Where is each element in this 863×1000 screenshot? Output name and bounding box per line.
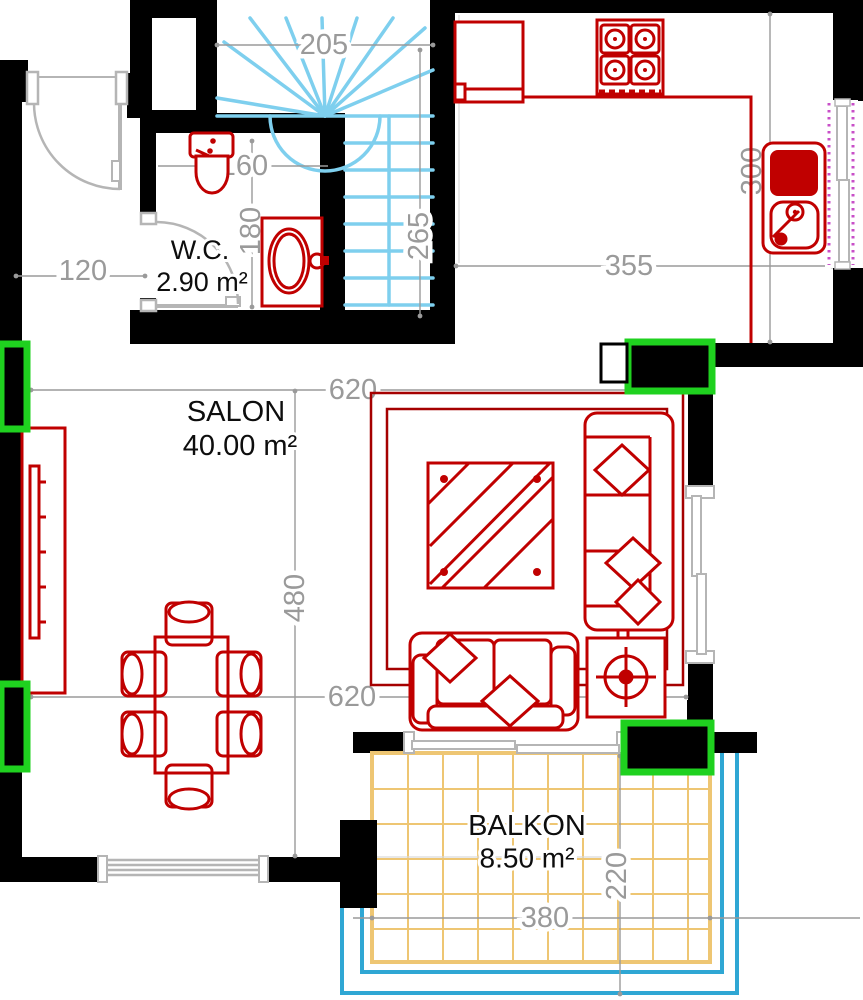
room-label-balkon: BALKON — [468, 810, 586, 842]
stove-cooktop — [597, 20, 663, 94]
fridge — [455, 22, 523, 102]
salon-south-window — [98, 856, 268, 882]
dim-label-620-bottom: 620 — [328, 681, 376, 713]
floor-plan-canvas: 205 265 300 355 120 160 180 620 480 620 … — [0, 0, 863, 1000]
sofa-two-seat — [410, 633, 578, 730]
kitchen-counter — [455, 97, 751, 343]
kitchen-window — [825, 99, 858, 269]
shaft-niche — [152, 18, 196, 110]
room-area-wc: 2.90 m² — [156, 267, 248, 297]
dim-label-380: 380 — [521, 902, 569, 934]
balcony-corner-pillar — [340, 820, 377, 908]
duct-shaft — [601, 344, 627, 382]
entrance-door — [27, 72, 127, 190]
sofa-three-seat — [585, 413, 673, 638]
washbasin — [262, 218, 329, 306]
dim-label-480: 480 — [279, 574, 311, 622]
side-table-floor-lamp — [587, 638, 665, 717]
room-label-salon: SALON — [187, 396, 285, 428]
room-label-wc: W.C. — [171, 235, 230, 265]
dining-set — [122, 602, 261, 809]
floor-plan: 205 265 300 355 120 160 180 620 480 620 … — [0, 0, 863, 1000]
dining-chair — [122, 602, 261, 809]
salon-side-window — [686, 486, 714, 663]
dim-label-355: 355 — [605, 250, 653, 282]
kitchen-sink — [763, 143, 825, 253]
room-area-salon: 40.00 m² — [183, 430, 298, 462]
balcony-sliding-door — [404, 732, 626, 753]
room-area-balkon: 8.50 m² — [480, 843, 575, 874]
dim-label-265: 265 — [403, 212, 435, 260]
coffee-table — [428, 463, 553, 588]
toilet — [190, 133, 233, 193]
dim-label-205: 205 — [300, 29, 348, 61]
dim-label-220: 220 — [601, 852, 633, 900]
tv-unit — [22, 428, 65, 693]
dim-label-120: 120 — [59, 255, 107, 287]
